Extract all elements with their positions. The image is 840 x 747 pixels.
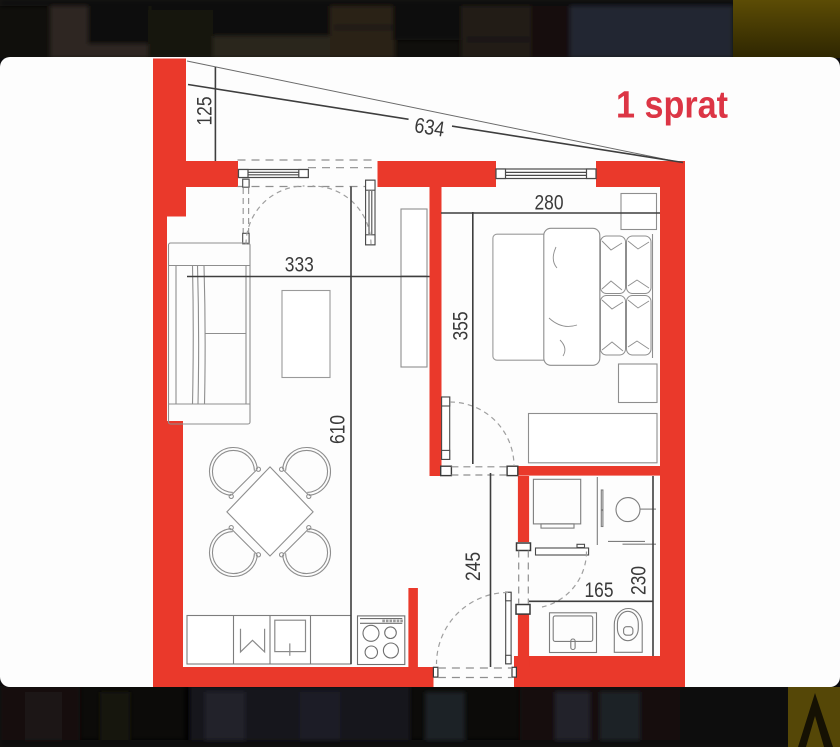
- svg-text:610: 610: [326, 415, 350, 444]
- svg-text:280: 280: [535, 191, 564, 215]
- svg-text:125: 125: [193, 96, 217, 125]
- svg-text:634: 634: [413, 113, 446, 141]
- svg-text:230: 230: [627, 566, 651, 595]
- svg-text:333: 333: [285, 253, 314, 277]
- svg-text:245: 245: [461, 552, 485, 581]
- svg-text:1 sprat: 1 sprat: [616, 85, 728, 127]
- svg-text:355: 355: [448, 311, 472, 340]
- svg-text:165: 165: [585, 578, 614, 602]
